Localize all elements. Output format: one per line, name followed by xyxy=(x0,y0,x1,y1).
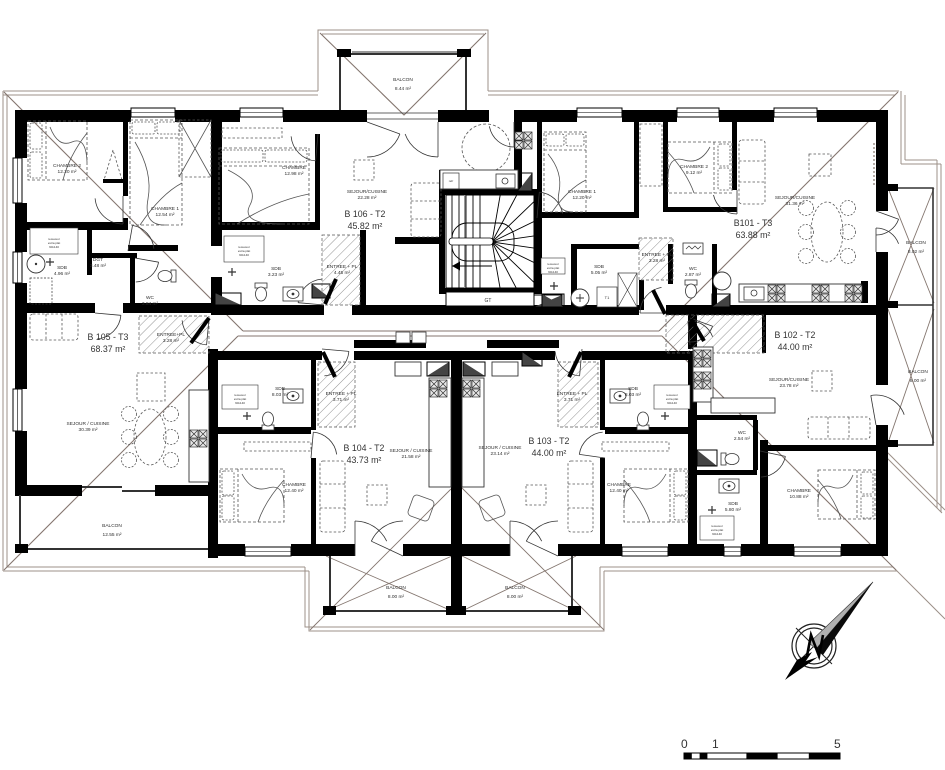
svg-text:B 106 - T2: B 106 - T2 xyxy=(345,209,386,219)
svg-text:3.28 m²: 3.28 m² xyxy=(163,338,180,344)
svg-text:SDB: SDB xyxy=(594,264,604,270)
svg-text:90x140: 90x140 xyxy=(548,270,558,274)
svg-text:31.36 m²: 31.36 m² xyxy=(786,201,805,207)
svg-text:CHAMBRE 2: CHAMBRE 2 xyxy=(680,164,708,170)
svg-text:ENTREE+PL: ENTREE+PL xyxy=(157,332,185,338)
svg-text:ENTREE + PL: ENTREE + PL xyxy=(557,391,588,397)
svg-text:SDB: SDB xyxy=(275,386,285,392)
svg-text:ENTREE + PL: ENTREE + PL xyxy=(326,391,357,397)
svg-text:68.37 m²: 68.37 m² xyxy=(91,344,126,354)
svg-text:CHAMBRE: CHAMBRE xyxy=(282,165,306,171)
svg-text:30.39 m²: 30.39 m² xyxy=(79,427,98,433)
svg-text:4.96 m²: 4.96 m² xyxy=(54,271,71,277)
svg-text:SDB: SDB xyxy=(628,386,638,392)
svg-text:ENTREE + PL: ENTREE + PL xyxy=(327,264,358,270)
svg-text:5.80 m²: 5.80 m² xyxy=(725,507,742,513)
svg-text:BALCON: BALCON xyxy=(908,369,928,375)
svg-text:5.05 m²: 5.05 m² xyxy=(591,270,608,276)
svg-text:CHAMBRE: CHAMBRE xyxy=(787,488,811,494)
svg-text:3.48 m²: 3.48 m² xyxy=(90,263,107,269)
svg-text:GT: GT xyxy=(485,298,492,304)
svg-text:B 102 - T2: B 102 - T2 xyxy=(775,330,816,340)
svg-text:BALCON: BALCON xyxy=(505,585,525,591)
svg-text:SEJOUR/CUISINE: SEJOUR/CUISINE xyxy=(775,195,815,201)
svg-text:WC: WC xyxy=(738,430,747,436)
svg-text:90x140: 90x140 xyxy=(239,253,249,257)
svg-text:10.88 m²: 10.88 m² xyxy=(790,494,809,500)
svg-text:3.71 m²: 3.71 m² xyxy=(564,397,581,403)
svg-text:12.40 m²: 12.40 m² xyxy=(285,488,304,494)
svg-text:12.40 m²: 12.40 m² xyxy=(610,488,629,494)
svg-text:8.03 m²: 8.03 m² xyxy=(272,392,289,398)
svg-text:12.55 m²: 12.55 m² xyxy=(103,532,122,538)
svg-text:3.23 m²: 3.23 m² xyxy=(268,272,285,278)
svg-text:2.87 m²: 2.87 m² xyxy=(685,272,702,278)
svg-text:63.88 m²: 63.88 m² xyxy=(736,230,771,240)
svg-text:CHAMBRE: CHAMBRE xyxy=(282,482,306,488)
svg-text:43.73 m²: 43.73 m² xyxy=(347,455,382,465)
svg-text:1: 1 xyxy=(712,737,719,751)
svg-text:23.14 m²: 23.14 m² xyxy=(491,451,510,457)
svg-text:ENTREE + PL: ENTREE + PL xyxy=(642,252,673,258)
svg-text:B101 - T3: B101 - T3 xyxy=(734,218,773,228)
svg-text:5: 5 xyxy=(834,737,841,751)
svg-text:8.00 m²: 8.00 m² xyxy=(388,594,405,600)
svg-text:8.00 m²: 8.00 m² xyxy=(507,594,524,600)
svg-text:BALCON: BALCON xyxy=(393,77,413,83)
svg-text:T1: T1 xyxy=(605,295,610,300)
svg-text:SDB: SDB xyxy=(271,266,281,272)
svg-text:45.82 m²: 45.82 m² xyxy=(348,221,383,231)
svg-text:B 103 - T2: B 103 - T2 xyxy=(529,436,570,446)
svg-text:WC: WC xyxy=(146,295,155,301)
svg-text:90x140: 90x140 xyxy=(712,532,722,536)
svg-text:CHAMBRE 1: CHAMBRE 1 xyxy=(568,189,596,195)
svg-text:4.45 m²: 4.45 m² xyxy=(334,270,351,276)
svg-text:22.28 m²: 22.28 m² xyxy=(358,195,377,201)
svg-text:90x140: 90x140 xyxy=(235,401,245,405)
svg-text:SEJOUR / CUISINE: SEJOUR / CUISINE xyxy=(67,421,110,427)
svg-text:3.71 m²: 3.71 m² xyxy=(333,397,350,403)
svg-text:8.44 m²: 8.44 m² xyxy=(395,86,412,92)
svg-text:SEJOUR / CUISINE: SEJOUR / CUISINE xyxy=(390,448,433,454)
svg-text:CHAMBRE 2: CHAMBRE 2 xyxy=(53,163,81,169)
svg-text:12.20 m²: 12.20 m² xyxy=(58,169,77,175)
svg-text:90x140: 90x140 xyxy=(667,401,677,405)
svg-text:90x140: 90x140 xyxy=(49,245,59,249)
svg-text:8.00 m²: 8.00 m² xyxy=(910,378,927,384)
svg-text:refr: refr xyxy=(449,179,454,183)
svg-text:B 104 - T2: B 104 - T2 xyxy=(344,443,385,453)
svg-text:12.98 m²: 12.98 m² xyxy=(285,171,304,177)
svg-text:SEJOUR/CUISINE: SEJOUR/CUISINE xyxy=(769,377,809,383)
svg-text:WC: WC xyxy=(689,266,698,272)
svg-text:21.58 m²: 21.58 m² xyxy=(402,454,421,460)
svg-text:BALCON: BALCON xyxy=(102,523,122,529)
svg-text:BALCON: BALCON xyxy=(906,240,926,246)
svg-text:8.03 m²: 8.03 m² xyxy=(625,392,642,398)
svg-text:B 105 - T3: B 105 - T3 xyxy=(88,332,129,342)
svg-text:23.78 m²: 23.78 m² xyxy=(780,383,799,389)
svg-text:SEJOUR/CUISINE: SEJOUR/CUISINE xyxy=(347,189,387,195)
svg-text:9.12 m²: 9.12 m² xyxy=(686,170,703,176)
svg-text:44.00 m²: 44.00 m² xyxy=(532,448,567,458)
svg-text:2.54 m²: 2.54 m² xyxy=(734,436,751,442)
svg-text:CHAMBRE: CHAMBRE xyxy=(607,482,631,488)
svg-text:8.02 m²: 8.02 m² xyxy=(908,249,925,255)
svg-text:3.28 m²: 3.28 m² xyxy=(649,258,666,264)
svg-text:SDB: SDB xyxy=(728,501,738,507)
svg-text:12.20 m²: 12.20 m² xyxy=(573,195,592,201)
svg-text:DGT: DGT xyxy=(93,257,103,263)
svg-text:BALCON: BALCON xyxy=(386,585,406,591)
svg-text:0: 0 xyxy=(681,737,688,751)
svg-text:SEJOUR / CUISINE: SEJOUR / CUISINE xyxy=(479,445,522,451)
svg-text:3.84 m²: 3.84 m² xyxy=(142,301,159,307)
svg-text:SDB: SDB xyxy=(57,265,67,271)
svg-text:44.00 m²: 44.00 m² xyxy=(778,342,813,352)
svg-text:12.54 m²: 12.54 m² xyxy=(156,212,175,218)
svg-text:CHAMBRE 1: CHAMBRE 1 xyxy=(151,206,179,212)
